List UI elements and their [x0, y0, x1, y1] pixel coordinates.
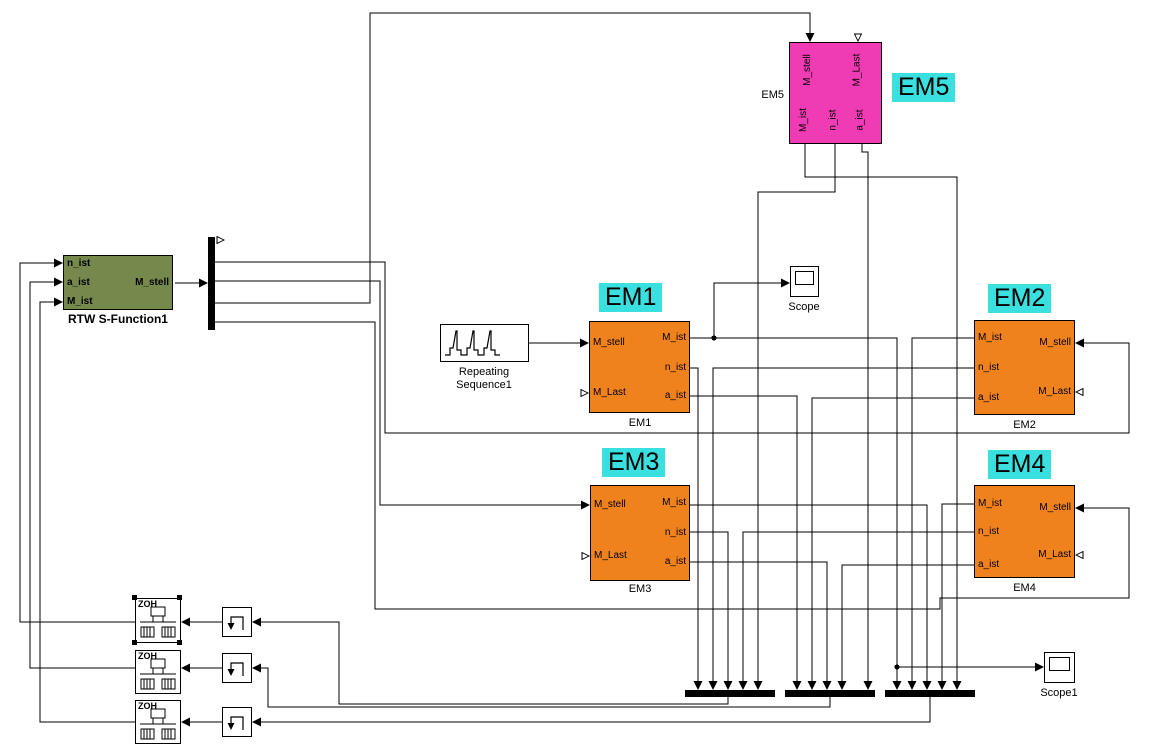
rate-transition1-block[interactable]: [222, 607, 252, 637]
zoh2-icon: [136, 651, 180, 693]
rate-transition3-icon: [223, 708, 251, 736]
em4-caption[interactable]: EM4: [974, 582, 1075, 595]
demux-bar[interactable]: [208, 237, 215, 330]
em4-port-m-last: M_Last: [1038, 550, 1071, 560]
em5-port-a-ist: a_ist: [856, 109, 866, 130]
zoh1-block[interactable]: ZOH: [135, 598, 181, 643]
rtw-port-m-ist: M_ist: [67, 297, 93, 307]
rtw-port-a-ist: a_ist: [67, 278, 90, 288]
em5-annotation[interactable]: EM5: [892, 73, 955, 102]
em4-port-m-stell: M_stell: [1039, 503, 1071, 513]
em5-port-n-ist: n_ist: [829, 109, 839, 130]
em3-port-m-last: M_Last: [594, 551, 627, 561]
scope1-block[interactable]: [1044, 652, 1075, 683]
rate-transition2-icon: [223, 654, 251, 682]
em5-port-m-ist: M_ist: [799, 108, 809, 132]
selection-handle[interactable]: [177, 595, 182, 600]
rate-transition2-block[interactable]: [222, 653, 252, 683]
em5-port-m-stell: M_stell: [803, 54, 813, 86]
em4-port-a-ist: a_ist: [978, 560, 999, 570]
em2-port-n-ist: n_ist: [978, 363, 999, 373]
mux-bar-a-ist[interactable]: [785, 690, 875, 697]
selection-handle[interactable]: [132, 640, 137, 645]
zoh3-block[interactable]: ZOH: [135, 700, 181, 744]
rtw-s-function-block[interactable]: n_ist a_ist M_ist M_stell: [63, 255, 173, 310]
em3-block[interactable]: M_stell M_Last M_ist n_ist a_ist: [590, 485, 690, 581]
selection-handle[interactable]: [177, 640, 182, 645]
em1-port-m-ist: M_ist: [662, 333, 686, 343]
selection-handle[interactable]: [132, 595, 137, 600]
em5-port-m-last: M_Last: [852, 54, 862, 87]
em4-port-m-ist: M_ist: [978, 499, 1002, 509]
em3-caption[interactable]: EM3: [590, 583, 690, 596]
waveform-icon: [441, 325, 528, 361]
em2-port-m-last: M_Last: [1038, 387, 1071, 397]
em1-annotation[interactable]: EM1: [599, 283, 662, 312]
rtw-caption[interactable]: RTW S-Function1: [38, 313, 198, 326]
rate-transition3-block[interactable]: [222, 707, 252, 737]
scope1-screen-icon: [1049, 657, 1070, 671]
repeating-sequence-block[interactable]: [440, 324, 529, 362]
em2-port-a-ist: a_ist: [978, 393, 999, 403]
em3-port-a-ist: a_ist: [665, 557, 686, 567]
em4-annotation[interactable]: EM4: [988, 450, 1051, 479]
scope-screen-icon: [795, 271, 814, 285]
em4-block[interactable]: M_ist n_ist a_ist M_stell M_Last: [974, 485, 1075, 578]
em4-port-n-ist: n_ist: [978, 527, 999, 537]
em5-block[interactable]: M_stell M_Last M_ist n_ist a_ist: [789, 42, 882, 144]
repeating-sequence-caption-2[interactable]: Sequence1: [424, 379, 544, 392]
em1-block[interactable]: M_stell M_Last M_ist n_ist a_ist: [589, 321, 690, 413]
repeating-sequence-caption-1[interactable]: Repeating: [424, 366, 544, 379]
rtw-port-n-ist: n_ist: [67, 259, 90, 269]
rate-transition1-icon: [223, 608, 251, 636]
em2-caption[interactable]: EM2: [974, 419, 1075, 432]
em3-annotation[interactable]: EM3: [602, 448, 665, 477]
em3-port-m-ist: M_ist: [662, 498, 686, 508]
em1-caption[interactable]: EM1: [590, 417, 690, 430]
em5-caption[interactable]: EM5: [744, 89, 784, 102]
em2-annotation[interactable]: EM2: [988, 284, 1051, 313]
zoh3-icon: [136, 701, 180, 743]
zoh2-block[interactable]: ZOH: [135, 650, 181, 694]
em3-port-m-stell: M_stell: [594, 500, 626, 510]
em1-port-n-ist: n_ist: [665, 363, 686, 373]
zoh1-icon: [136, 599, 180, 642]
simulink-canvas: n_ist a_ist M_ist M_stell RTW S-Function…: [0, 0, 1164, 748]
scope-block[interactable]: [790, 266, 819, 297]
em1-port-a-ist: a_ist: [665, 391, 686, 401]
em2-port-m-stell: M_stell: [1039, 338, 1071, 348]
em2-block[interactable]: M_ist n_ist a_ist M_stell M_Last: [974, 320, 1075, 415]
scope1-caption[interactable]: Scope1: [1029, 687, 1089, 700]
em2-port-m-ist: M_ist: [978, 333, 1002, 343]
em1-port-m-stell: M_stell: [593, 338, 625, 348]
mux-bar-m-ist[interactable]: [885, 690, 975, 697]
scope-caption[interactable]: Scope: [774, 301, 834, 314]
mux-bar-n-ist[interactable]: [685, 690, 775, 697]
em1-port-m-last: M_Last: [593, 388, 626, 398]
rtw-port-m-stell: M_stell: [135, 278, 169, 288]
em3-port-n-ist: n_ist: [665, 528, 686, 538]
